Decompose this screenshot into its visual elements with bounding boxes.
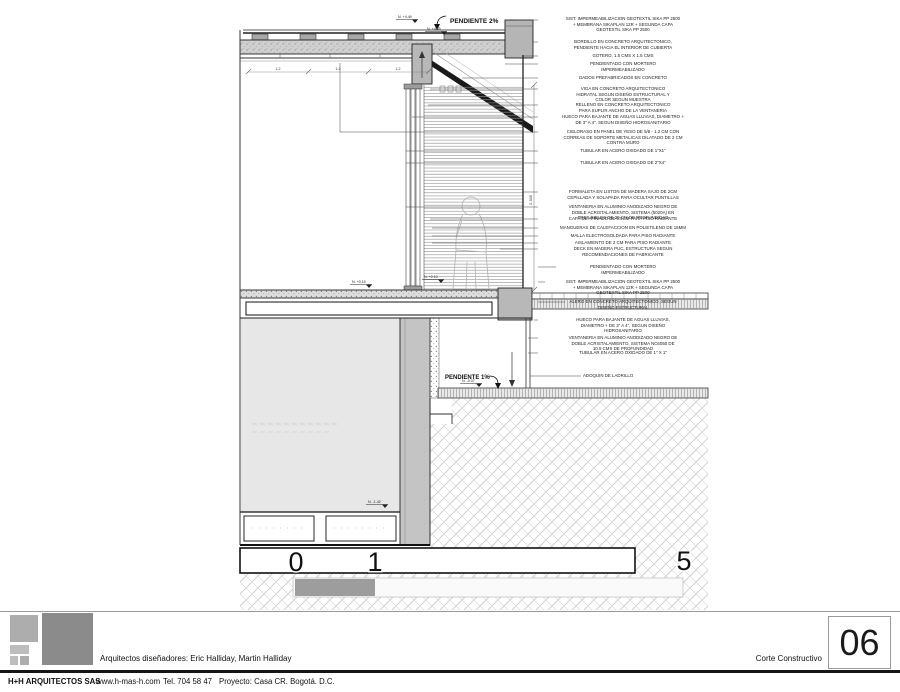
annotation-note-3: GOTERO, 1.5 CMS X 1.5 CMS: [538, 53, 708, 59]
annotation-note-10: TUBULAR EN ACERO OXIDADO DE 1"X1": [538, 148, 708, 154]
annotation-note-19: PENDIENTADO CON MORTERO IMPERMEABILIZADO: [538, 264, 708, 275]
sheet-number-box: 06: [828, 616, 891, 669]
scale-number-1: 1: [367, 547, 382, 577]
level-roof-1: N. +4.49: [396, 15, 418, 23]
annotation-note-15: MANGUERAS DE CALEFACCION EN POLIETILENO …: [538, 225, 708, 231]
annotation-note-11: TUBULAR EN ACERO OXIDADO DE 2"X4": [538, 160, 708, 166]
svg-text:N. +0.15: N. +0.15: [352, 280, 366, 284]
logo-square-small-3: [20, 656, 29, 665]
annotation-note-5: DADOS PREFABRICADOS EN CONCRETO: [538, 75, 708, 81]
logo-square-small-2: [10, 656, 18, 665]
annotation-note-2: BORDILLO EN CONCRETO ARQUITECTONICO, PEN…: [538, 39, 708, 50]
level-floor-interior: N. +0.15: [350, 280, 372, 288]
annotation-note-6: VIGA EN CONCRETO ARQUITECTONICO HIDRATAL…: [538, 86, 708, 103]
titleblock-top-rule: [0, 611, 900, 612]
dim-2345: 2.345: [528, 194, 533, 205]
annotation-note-7: RELLENO EN CONCRETO ARQUITECTONICO PARA …: [538, 102, 708, 113]
logo-square-dark: [42, 613, 93, 665]
sheet-title: Corte Constructivo: [690, 654, 822, 663]
dim-12-a: 1.2: [276, 67, 281, 71]
annotation-note-24: TUBULAR EN ACERO OXIDADO DE 1" X 1": [538, 350, 708, 356]
svg-text:N. -1.42: N. -1.42: [368, 500, 381, 504]
firm-phone: Tel. 704 58 47: [163, 677, 212, 686]
lower-interior: [241, 318, 400, 512]
designers-credit: Arquitectos diseñadores: Eric Halliday, …: [100, 654, 292, 663]
window-dimension: 2.345: [528, 82, 537, 293]
annotation-note-1: SIST. IMPERMEABILIZACION GEOTEXTIL SIKA …: [538, 16, 708, 33]
construction-section-drawing: 0 1 5: [0, 0, 900, 612]
firm-name: H+H ARQUITECTOS SAS: [8, 677, 101, 686]
logo-square-light: [10, 615, 38, 642]
level-roof-2: N. +4.45: [425, 27, 447, 35]
scale-number-5: 5: [676, 546, 691, 576]
annotation-note-21: ALERO EN CONCRETO ARQUITECTONICO, SEGUN …: [538, 299, 708, 310]
annotation-note-18: DECK EN MADERA PUC, ESTRUCTURA SEGUN REC…: [538, 246, 708, 257]
svg-text:N. +4.45: N. +4.45: [427, 27, 441, 31]
annotation-note-8: HUECO PARA BAJANTE DE AGUAS LLUVIAS, DIA…: [538, 114, 708, 125]
annotation-note-22: HUECO PARA BAJANTE DE AGUAS LLUVIAS, DIA…: [538, 317, 708, 334]
dim-12-c: 1.2: [396, 67, 401, 71]
firm-website: www.h-mas-h.com: [96, 677, 160, 686]
ceiling-dimension-row: 1.2 1.2 1.2: [246, 67, 431, 74]
firm-logo: [8, 613, 98, 668]
svg-text:N. +0.10: N. +0.10: [424, 275, 438, 279]
annotation-note-12: FORMALETA EN LISTON DE MADERA SAJO DE 2C…: [538, 189, 708, 200]
upper-floor-slab: [240, 288, 532, 320]
annotation-note-20: SIST. IMPERMEABILIZACION GEOTEXTIL SIKA …: [538, 279, 708, 296]
logo-square-small-1: [10, 645, 29, 654]
titleblock-thick-rule: [0, 670, 900, 673]
annotation-note-16: MALLA ELECTROSOLDADA PARA PISO RADIANTE: [538, 233, 708, 239]
annotation-note-9: CIELORASO EN PANEL DE YESO DE 5/8 - 1.2 …: [538, 129, 708, 146]
scale-number-0: 0: [288, 547, 303, 577]
svg-text:N. -0.07: N. -0.07: [462, 379, 475, 383]
scale-bar: 0 1 5: [240, 546, 692, 597]
slope-top-label: PENDIENTE 2%: [450, 18, 499, 25]
annotation-note-17: AISLAMIENTO DE 2 CM PARA PISO RADIANTE: [538, 240, 708, 246]
svg-text:N. +4.49: N. +4.49: [398, 15, 412, 19]
window-assembly: [404, 55, 523, 291]
annotation-note-4: PENDIENTADO CON MORTERO IMPERMEABILIZADO: [538, 61, 708, 72]
annotation-note-25: ADOQUIN DE LADRILLO: [583, 373, 693, 379]
project-name: Proyecto: Casa CR. Bogotá. D.C.: [219, 677, 335, 686]
sheet-page: { "titleblock": { "designers": "Arquitec…: [0, 0, 900, 692]
sheet-number: 06: [839, 622, 879, 664]
annotation-note-14: CAPA DE AFINADO DE 0.5CM PARA PISO RADIA…: [538, 216, 708, 222]
